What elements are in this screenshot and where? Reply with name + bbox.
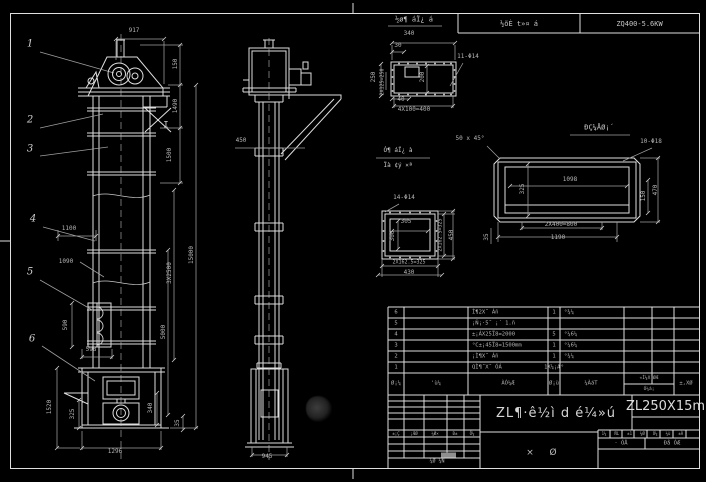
- bolt-hole: [392, 83, 394, 85]
- dim-label: 5000: [161, 325, 167, 339]
- detail-title-label: Ó¶ áÏ¿ à: [384, 148, 413, 154]
- balloon-number: 4: [30, 214, 36, 225]
- assembly-type-char: ×: [526, 448, 534, 458]
- dim-label: 1090: [59, 259, 73, 265]
- dim-label: 1098: [563, 177, 577, 183]
- dim-label: 2X162.5=325: [392, 261, 425, 266]
- titleblock-stamp-cell: [441, 453, 456, 458]
- bom-header-total-top: «Ì¼X¡ØÆ: [640, 377, 659, 382]
- dim-label: 450: [236, 138, 247, 144]
- bom-cell-no: 5: [394, 321, 397, 327]
- right-panel-tiny-label: Ó¼: [653, 432, 658, 436]
- dim-label: 325: [520, 184, 526, 195]
- dim-label: 4X100=400: [398, 107, 431, 113]
- dimension-ticks: [55, 37, 660, 457]
- bolt-hole: [454, 69, 456, 71]
- bolt-hole: [399, 257, 401, 259]
- dim-label: 305: [401, 219, 412, 225]
- dim-label: 340: [148, 403, 154, 414]
- dim-label: 30: [394, 43, 401, 49]
- bom-cell-qty: 1: [552, 343, 555, 349]
- bom-cell-material: °¼6¼: [564, 332, 577, 338]
- bolt-hole: [409, 212, 411, 214]
- drawing-title: ZL¶·ê½ì d é¼»ú: [482, 397, 630, 429]
- balloon-number: 1: [27, 39, 33, 50]
- right-panel-tiny-label: ±À: [678, 432, 683, 436]
- bom-cell-no: 6: [394, 310, 397, 316]
- detail-title-label: ½ø¶ áÏ¿ á: [395, 17, 433, 24]
- bolt-hole: [407, 63, 409, 65]
- dim-label: 3X2500: [167, 262, 173, 284]
- sig-row-label: Ð±: [453, 432, 458, 436]
- bom-cell-no: 2: [394, 354, 397, 360]
- dim-label: 200: [420, 72, 426, 83]
- sig-row-label: ¼Ø×: [431, 432, 438, 436]
- dim-label: 15000: [189, 246, 195, 264]
- bolt-hole: [454, 76, 456, 78]
- gearbox-note-label: ½õÈ t»¤ á: [458, 14, 580, 33]
- dim-label: 1190: [551, 235, 565, 241]
- bolt-hole: [434, 94, 436, 96]
- bom-cell-name: ¡Ñ¡·5˝ ¡´ 1.ñ: [472, 321, 515, 327]
- bolt-hole: [389, 212, 391, 214]
- bom-cell-material: °¾¼: [564, 310, 574, 316]
- bolt-hole: [425, 63, 427, 65]
- bolt-hole: [383, 220, 385, 222]
- bom-header-name: ÀÓ¼Æ: [501, 381, 514, 387]
- bom-cell-no: 4: [394, 332, 397, 338]
- dim-label: 1490: [173, 99, 179, 113]
- dim-label: 945: [262, 454, 273, 460]
- sig-row-label: ¡ÆØ: [410, 432, 417, 436]
- bom-cell-name: QÌ¶˝X˝ ÓÁ: [472, 365, 502, 371]
- bolt-hole: [425, 94, 427, 96]
- dim-label: 50 x 45°: [456, 136, 485, 142]
- bolt-hole: [450, 63, 452, 65]
- bolt-hole: [398, 63, 400, 65]
- bom-header-dwg: 'ù¼: [431, 381, 441, 387]
- screen-smudge: [306, 396, 332, 422]
- bolt-hole: [419, 212, 421, 214]
- right-panel-tiny-label: ±1: [627, 432, 632, 436]
- sig-row-label: ±¡Ç: [392, 432, 399, 436]
- dim-label: 150: [173, 59, 179, 70]
- bolt-hole: [407, 94, 409, 96]
- sig-row-label: Õ¼: [470, 432, 475, 436]
- bom-cell-name: °C±¡45Ï8=1500mm: [472, 343, 522, 349]
- bom-cell-qty: 5: [552, 332, 555, 338]
- bom-header-material: ¼ÀáT: [584, 381, 597, 387]
- bolt-hole: [429, 212, 431, 214]
- dim-label: 590: [63, 320, 69, 331]
- dim-label: 40: [397, 97, 404, 103]
- balloon-number: 3: [27, 144, 33, 155]
- bolt-hole: [389, 257, 391, 259]
- dim-label: 470: [653, 185, 659, 196]
- bolt-hole: [419, 257, 421, 259]
- dim-label: 10-Φ18: [640, 139, 662, 145]
- detail-title-label: ÐÇ¼ÅØ¡´: [584, 125, 614, 132]
- bolt-hole: [429, 257, 431, 259]
- right-panel-tiny-label: ¼Ø: [640, 432, 645, 436]
- dim-label: 300: [390, 231, 396, 242]
- dim-label: 340: [404, 31, 415, 37]
- bom-cell-name: ¡Ì¶X˝ Áñ: [472, 354, 499, 360]
- balloon-number: 6: [29, 334, 35, 345]
- bom-cell-qty: 1: [552, 354, 555, 360]
- bolt-hole: [383, 240, 385, 242]
- bolt-hole: [443, 63, 445, 65]
- bom-header-qty: Ø¡ù: [549, 381, 559, 387]
- dimension-lines: [40, 26, 660, 457]
- cad-drawing-canvas: ½õÈ t»¤ á ZQ400-5.6KW ZL¶·ê½ì d é¼»ú ZL2…: [0, 0, 706, 482]
- bolt-hole: [399, 212, 401, 214]
- dim-label: 450: [449, 230, 455, 241]
- bolt-hole: [454, 83, 456, 85]
- right-panel-cell-label: · ÓÅ: [614, 441, 627, 447]
- bom-cell-name: ±¡ÁX25Ï8=2000: [472, 332, 515, 338]
- pulley-circles: [88, 63, 143, 421]
- gearbox-model-label: ZQ400-5.6KW: [580, 14, 699, 33]
- bom-header-no: Ø¡¼: [391, 381, 401, 387]
- balloon-number: 5: [27, 267, 33, 278]
- right-panel-tiny-label: ¼ù: [666, 432, 671, 436]
- right-panel-cell-label: Ðå ÓÆ: [664, 441, 681, 447]
- bolt-hole: [392, 76, 394, 78]
- dim-label: 325: [70, 409, 76, 420]
- dim-label: 14-Φ14: [393, 195, 415, 201]
- dim-label: 1296: [108, 449, 122, 455]
- dim-label: 150: [641, 191, 647, 202]
- dim-label: 1100: [62, 226, 76, 232]
- dim-label: 1500: [167, 148, 173, 162]
- bolt-hole: [392, 90, 394, 92]
- bolt-hole: [383, 230, 385, 232]
- dim-label: 35: [484, 233, 490, 240]
- bolt-hole: [416, 94, 418, 96]
- bom-cell-qty: 1X¼¡Æ°: [544, 365, 564, 371]
- bom-cell-material: °¾¼: [564, 354, 574, 360]
- dim-label: 2X400=800: [545, 222, 578, 228]
- bom-cell-no: 3: [394, 343, 397, 349]
- bolt-hole: [443, 94, 445, 96]
- bolt-hole: [454, 90, 456, 92]
- bolt-hole: [416, 63, 418, 65]
- right-panel-tiny-label: 1¼: [602, 432, 607, 436]
- bolt-hole: [392, 69, 394, 71]
- right-panel-tiny-label: ÑL: [614, 432, 619, 436]
- break-lines: [93, 194, 150, 285]
- dim-label: 2X125=250: [381, 68, 386, 95]
- dim-label: 2X162.5=325: [439, 218, 444, 251]
- dim-label: 11-Φ14: [457, 54, 479, 60]
- dim-label: 250: [371, 72, 377, 83]
- dim-label: 35: [175, 419, 181, 426]
- bom-cell-qty: 1: [552, 310, 555, 316]
- bolt-hole: [434, 63, 436, 65]
- bolt-hole: [383, 250, 385, 252]
- dim-label: 1520: [47, 400, 53, 414]
- bom-cell-material: °¼6¼: [564, 343, 577, 349]
- detail-title-label: Ïà ¢ý ×ª: [384, 163, 413, 169]
- bom-cell-no: 1: [394, 365, 397, 371]
- bom-cell-name: Ì¶2X˝ Áñ: [472, 310, 499, 316]
- detail-title-label: I: [163, 122, 168, 131]
- bom-header-total-bottom: Ó¼á¡: [644, 388, 655, 393]
- model-number: ZL250X15m: [632, 396, 699, 416]
- dim-label: 598: [86, 347, 97, 353]
- bolt-hole: [409, 257, 411, 259]
- dim-label: 917: [129, 28, 140, 34]
- balloon-number: 2: [27, 115, 33, 126]
- titleblock-bottom-label: ¼Ø ¼Ñ: [429, 460, 444, 465]
- dim-label: 430: [404, 270, 415, 276]
- bom-header-remark: ±,XØ: [679, 381, 692, 387]
- assembly-type-char: Ø: [549, 448, 556, 458]
- bucket-profiles: [97, 307, 103, 345]
- bolt-hole: [450, 94, 452, 96]
